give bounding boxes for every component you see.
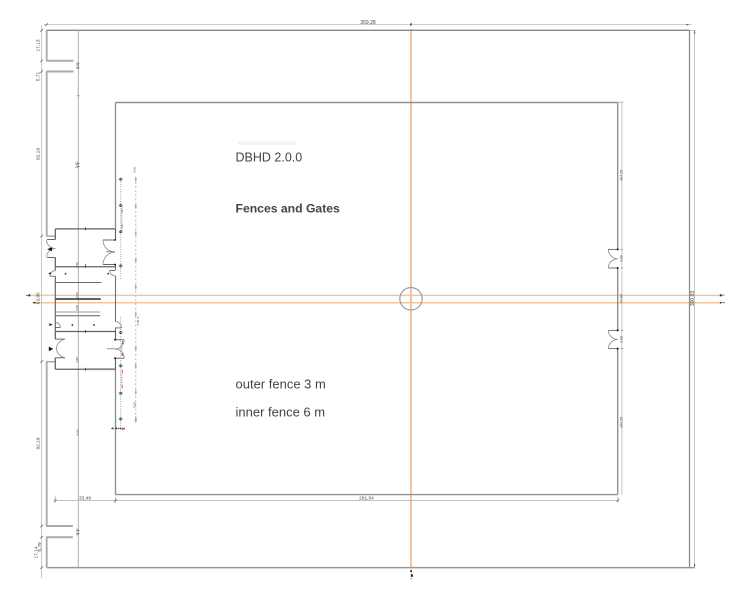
svg-text:4,00: 4,00: [75, 528, 79, 535]
svg-text:300,03: 300,03: [690, 291, 696, 307]
svg-text:6,00: 6,00: [133, 167, 137, 173]
svg-text:4,00: 4,00: [75, 62, 79, 69]
svg-text:104,25: 104,25: [620, 417, 624, 428]
svg-text:2,60: 2,60: [75, 161, 79, 168]
svg-text:92,19: 92,19: [36, 437, 42, 449]
svg-text:44,64: 44,64: [620, 294, 624, 303]
svg-text:5,71: 5,71: [36, 72, 42, 82]
svg-text:17,13: 17,13: [36, 39, 42, 51]
svg-text:281,04: 281,04: [359, 495, 374, 501]
svg-text:92,19: 92,19: [36, 148, 42, 160]
svg-text:DBHD 2.0.0: DBHD 2.0.0: [236, 151, 303, 165]
svg-text:outer fence 3 m: outer fence 3 m: [236, 377, 326, 392]
svg-text:4,50: 4,50: [75, 357, 79, 363]
svg-text:4,00 m: 4,00 m: [136, 316, 140, 326]
svg-text:Fences and Gates: Fences and Gates: [236, 202, 341, 216]
svg-text:33,49: 33,49: [79, 495, 91, 501]
svg-text:359,28: 359,28: [360, 20, 376, 26]
svg-text:6,00: 6,00: [133, 402, 137, 408]
svg-text:17,14: 17,14: [33, 546, 39, 558]
svg-text:inner fence 6 m: inner fence 6 m: [236, 405, 326, 420]
svg-text:63,95: 63,95: [36, 292, 42, 304]
svg-text:4,50: 4,50: [75, 305, 79, 311]
svg-text:4,00: 4,00: [620, 255, 624, 262]
svg-text:4,00: 4,00: [620, 336, 624, 343]
svg-text:4,50: 4,50: [75, 429, 79, 435]
svg-text:104,25: 104,25: [620, 170, 624, 181]
